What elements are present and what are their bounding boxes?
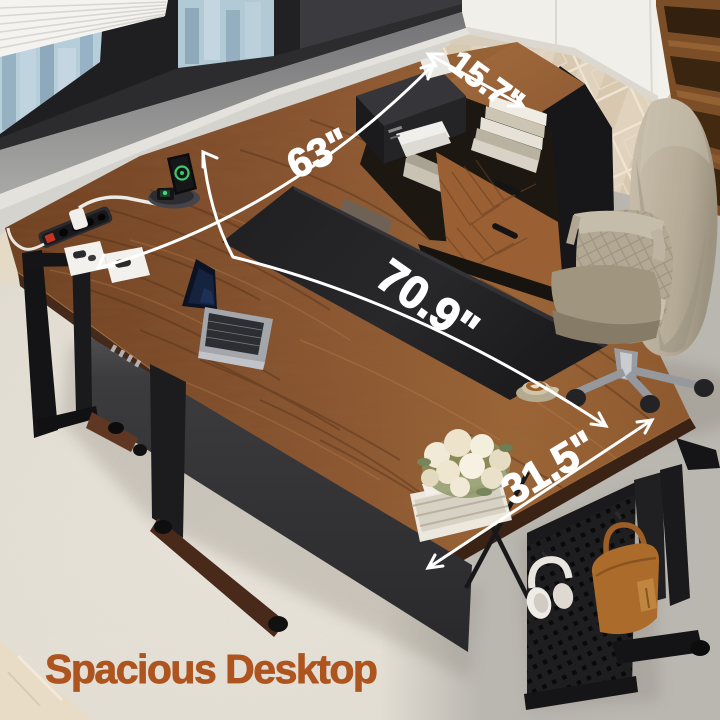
svg-text:Spacious Desktop: Spacious Desktop — [45, 646, 377, 692]
